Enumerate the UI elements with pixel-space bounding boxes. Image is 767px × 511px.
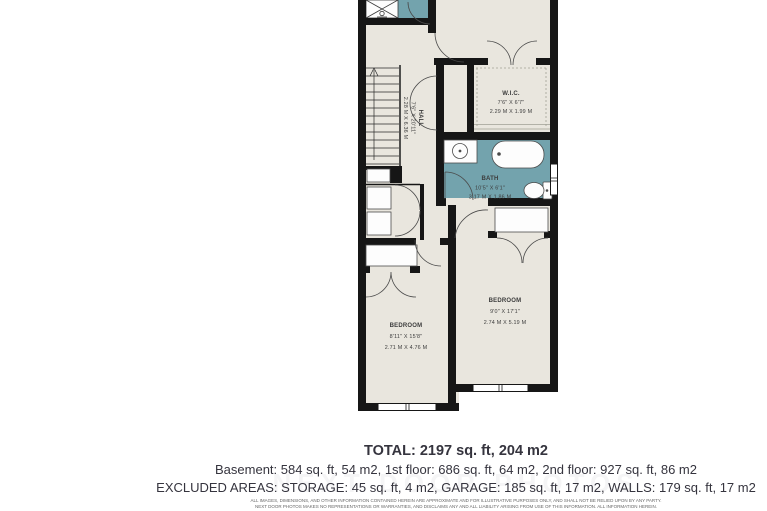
dryer-icon [367,212,391,235]
wall-niche [367,169,390,182]
hall-dims-imperial: 7'6" X 20'11" [410,102,416,135]
wic-dims-imperial: 7'6" X 6'7" [498,100,525,106]
hall-label: HALL [417,110,423,127]
total-area-text: TOTAL: 2197 sq. ft, 204 m2 [364,443,548,459]
wic-label: W.I.C. [502,91,520,97]
bedroom-right-dims-metric: 2.74 M X 5.19 M [484,320,527,326]
bedroom-right-dims-imperial: 9'0" X 17'1" [490,309,520,315]
bath-dims-metric: 3.17 M X 1.86 M [469,195,512,201]
disclaimer-line-2: NEXT DOOR PHOTOS MAKES NO REPRESENTATION… [255,504,657,509]
floorplan-drawing: HALL 7'6" X 20'11" 2.28 M X 6.36 M W.I.C… [356,0,560,412]
toilet-bowl-icon [524,183,544,199]
bath-dims-imperial: 10'5" X 6'1" [475,186,505,192]
floor-areas-text: Basement: 584 sq. ft, 54 m2, 1st floor: … [215,462,697,477]
bedroom-left-dims-imperial: 8'11" X 15'8" [390,334,423,340]
shower-icon [366,0,398,18]
wic-dims-metric: 2.29 M X 1.99 M [490,109,533,115]
bath-label: BATH [481,176,498,182]
floorplan-page: HALL 7'6" X 20'11" 2.28 M X 6.36 M W.I.C… [0,0,767,511]
disclaimer-line-1: ALL IMAGES, DIMENSIONS, AND OTHER INFORM… [250,498,661,503]
closet-top-wet-floor [398,0,428,18]
excluded-areas-text: EXCLUDED AREAS: STORAGE: 45 sq. ft, 4 m2… [156,480,756,495]
bedroom-left-label: BEDROOM [390,323,423,329]
washer-icon [367,187,391,209]
window-bedroom-right [473,385,528,392]
window-bath [551,164,558,195]
closet-left-box [366,245,417,266]
window-bedroom-left [378,404,436,411]
hall-dims-metric: 2.28 M X 6.36 M [402,97,408,140]
closet-right-box [495,208,548,232]
room-label-bedroom-left: BEDROOM 8'11" X 15'8" 2.71 M X 4.76 M [385,323,428,351]
bedroom-right-label: BEDROOM [489,298,522,304]
bedroom-left-dims-metric: 2.71 M X 4.76 M [385,345,428,351]
